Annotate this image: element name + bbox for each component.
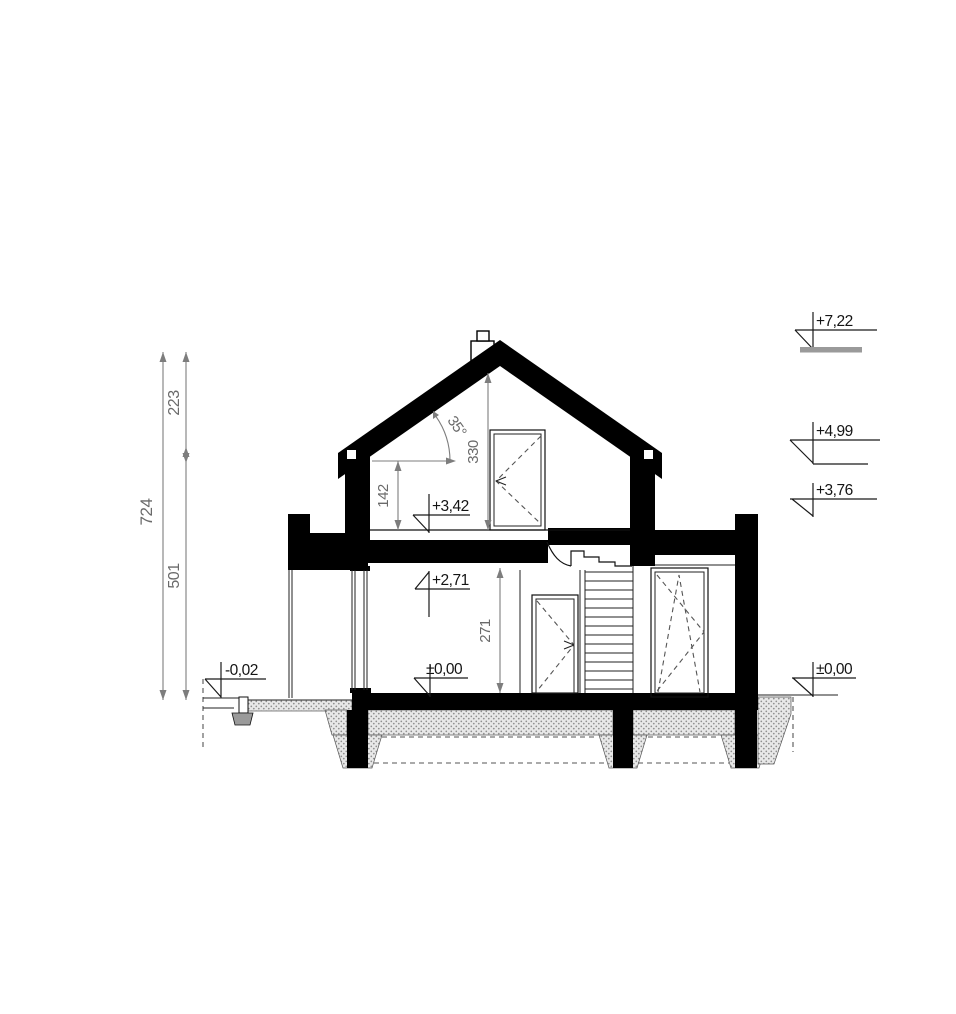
dim-label-ground: 271 <box>477 619 494 643</box>
wall-plate-notch-right <box>644 450 653 459</box>
glazing-sill <box>350 688 371 693</box>
subfloor-hatch-right <box>633 710 735 735</box>
dim-label-lower: 501 <box>166 563 183 589</box>
footing-right-core <box>735 710 757 768</box>
chimney-cap <box>477 331 489 341</box>
terrace-bedding-hatch <box>248 700 352 711</box>
house-section-canvas: 724 223 501 142 330 271 35° +7,22 +4,99 … <box>0 0 956 1014</box>
terrace-curb-block <box>232 713 253 725</box>
dim-label-upper: 223 <box>166 390 183 416</box>
dim-label-total: 724 <box>137 499 156 526</box>
elevation-ground-exterior-label: ±0,00 <box>816 661 853 678</box>
footing-middle-core <box>613 710 633 768</box>
elevation-eaves-label: +4,99 <box>816 423 853 440</box>
elevation-ridge-label: +7,22 <box>816 313 853 330</box>
elevation-flat-roof-label: +3,76 <box>816 482 853 499</box>
wall-plate-notch-left <box>347 450 356 459</box>
architectural-section-page: 724 223 501 142 330 271 35° +7,22 +4,99 … <box>0 0 956 1014</box>
subfloor-hatch-left <box>368 710 613 735</box>
elevation-terrace-label: -0,02 <box>225 662 258 679</box>
elevation-floor-interior-label: ±0,00 <box>426 661 463 678</box>
marker-ridge-bar <box>800 347 862 353</box>
ground-floor-slab <box>352 693 758 710</box>
right-exterior-wall <box>735 514 758 710</box>
elevation-ceiling-label: +2,71 <box>432 572 469 589</box>
attic-floor-slab <box>368 540 548 563</box>
elevation-attic-floor-label: +3,42 <box>432 498 469 515</box>
terrace-curb-post <box>239 697 248 713</box>
dim-label-knee: 142 <box>375 484 392 508</box>
terrace-parapet <box>288 514 310 533</box>
footing-left-core <box>347 710 368 768</box>
dim-label-attic: 330 <box>465 440 482 464</box>
